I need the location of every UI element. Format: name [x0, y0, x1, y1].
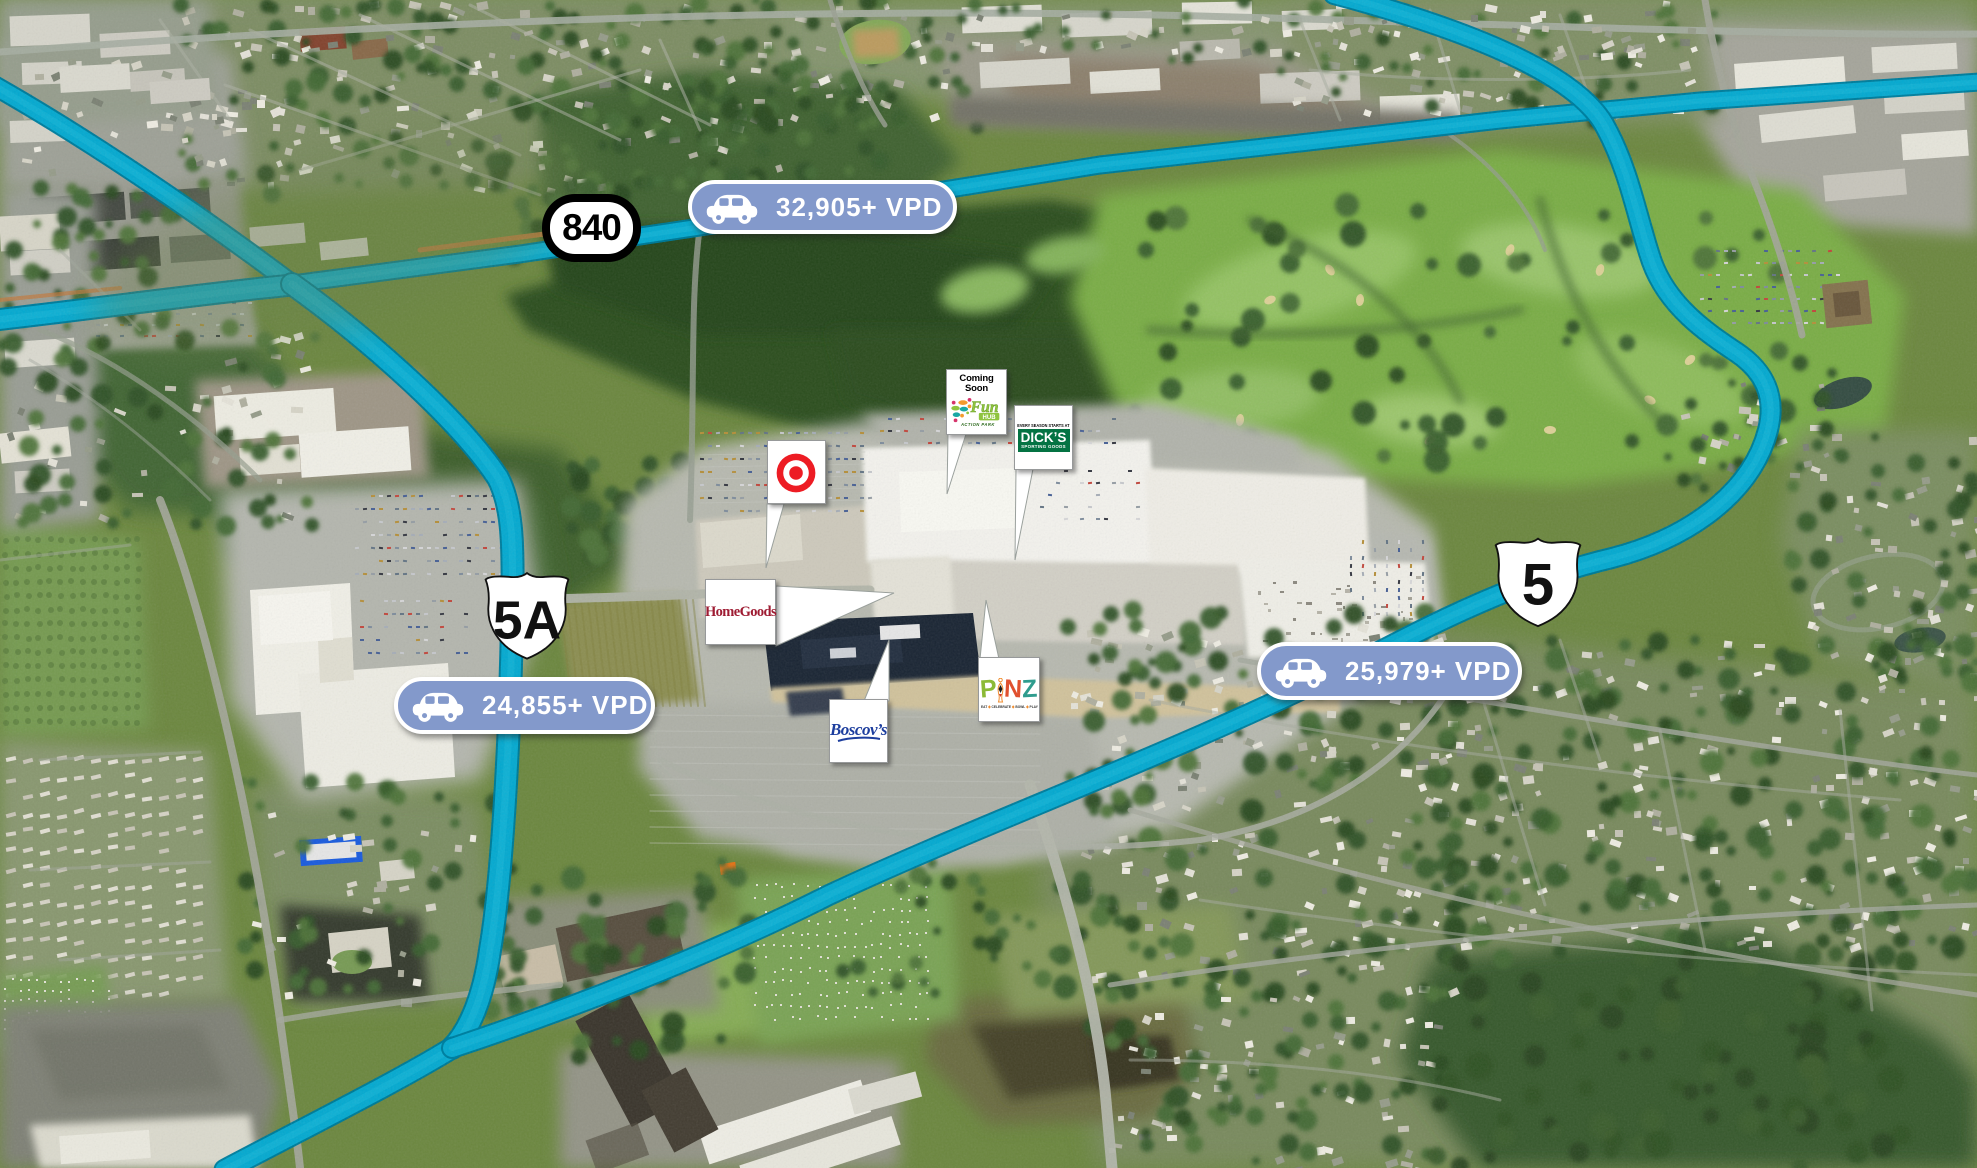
- svg-text:5: 5: [1522, 553, 1554, 618]
- svg-text:ACTION PARK: ACTION PARK: [960, 422, 995, 427]
- svg-text:HUB: HUB: [983, 415, 997, 421]
- svg-text:5A: 5A: [493, 591, 561, 650]
